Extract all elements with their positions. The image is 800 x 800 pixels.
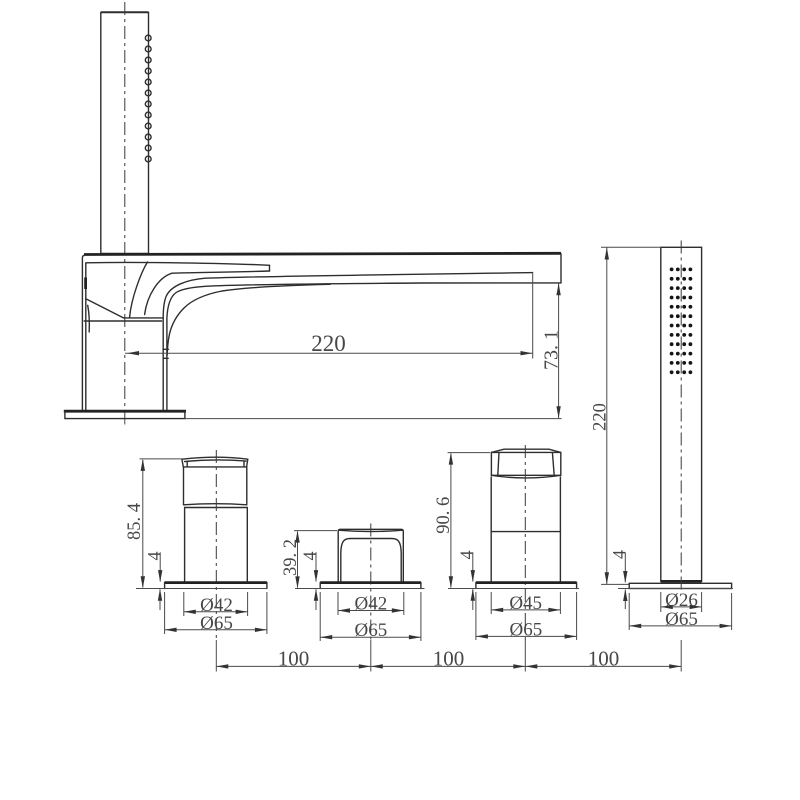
svg-text:85. 4: 85. 4 [125,503,145,540]
svg-text:Ø65: Ø65 [665,609,698,630]
svg-text:73. 1: 73. 1 [541,330,563,370]
svg-text:100: 100 [278,647,310,671]
svg-text:100: 100 [588,647,620,671]
svg-text:Ø65: Ø65 [200,613,233,634]
svg-text:39. 2: 39. 2 [281,539,301,576]
svg-text:Ø45: Ø45 [509,593,542,614]
svg-text:90. 6: 90. 6 [434,497,454,534]
svg-text:4: 4 [144,552,164,561]
svg-text:Ø65: Ø65 [510,619,543,640]
svg-text:Ø65: Ø65 [355,620,388,641]
svg-text:Ø26: Ø26 [665,590,698,611]
svg-text:Ø42: Ø42 [355,594,388,615]
svg-text:100: 100 [433,647,465,671]
svg-text:220: 220 [591,403,611,431]
svg-text:220: 220 [311,331,346,356]
